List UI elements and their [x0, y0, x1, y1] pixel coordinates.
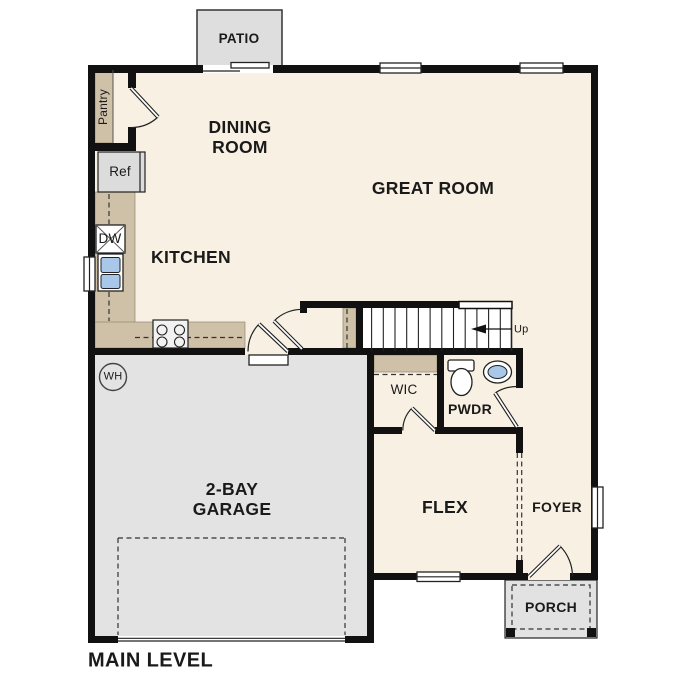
wall-segment: [435, 427, 523, 434]
window: [84, 257, 95, 291]
garage-label: 2-BAY GARAGE: [193, 479, 272, 519]
wic-label: WIC: [391, 382, 418, 398]
kitchen-label: KITCHEN: [151, 247, 231, 267]
pantry-label: Pantry: [97, 89, 111, 125]
wall-segment: [516, 560, 523, 580]
wall-segment: [128, 65, 136, 88]
range-stove: [153, 320, 188, 348]
wall-segment: [345, 636, 370, 643]
stair-railing: [459, 302, 512, 309]
wall-segment: [300, 308, 307, 313]
wall-segment: [300, 301, 460, 308]
plan-title: MAIN LEVEL: [88, 650, 213, 673]
wall-segment: [367, 348, 374, 643]
wic-closet-shelf: [374, 355, 437, 372]
great-room-label: GREAT ROOM: [372, 178, 494, 198]
patio-label: PATIO: [219, 31, 260, 47]
wall-segment: [370, 427, 402, 434]
window: [592, 487, 603, 528]
dining-room-label: DINING ROOM: [208, 117, 271, 157]
floor-plan: PATIO DINING ROOM GREAT ROOM KITCHEN 2-B…: [0, 0, 687, 687]
flex-label: FLEX: [422, 497, 468, 517]
pwdr-sink: [484, 361, 512, 383]
wall-segment: [570, 573, 598, 580]
wall-segment: [88, 65, 203, 73]
garage-door: [118, 636, 345, 643]
window: [380, 63, 421, 73]
window: [520, 63, 563, 73]
wall-segment: [356, 308, 363, 348]
stairs-up-label: Up: [514, 324, 528, 337]
foyer-label: FOYER: [532, 499, 582, 515]
wall-segment: [516, 348, 523, 388]
stair-closet: [343, 308, 356, 348]
pwdr-label: PWDR: [448, 401, 492, 417]
wall-segment: [88, 348, 245, 355]
refrigerator-label: Ref: [109, 164, 131, 180]
wall-segment: [516, 427, 523, 453]
wall-segment: [88, 636, 118, 643]
kitchen-sink: [98, 254, 123, 291]
wall-segment: [128, 127, 136, 151]
dishwasher-label: DW: [99, 231, 122, 247]
wall-segment: [437, 348, 444, 434]
wall-segment: [288, 348, 523, 355]
window: [417, 572, 460, 582]
porch-label: PORCH: [525, 599, 577, 615]
water-heater-label: WH: [104, 371, 123, 384]
